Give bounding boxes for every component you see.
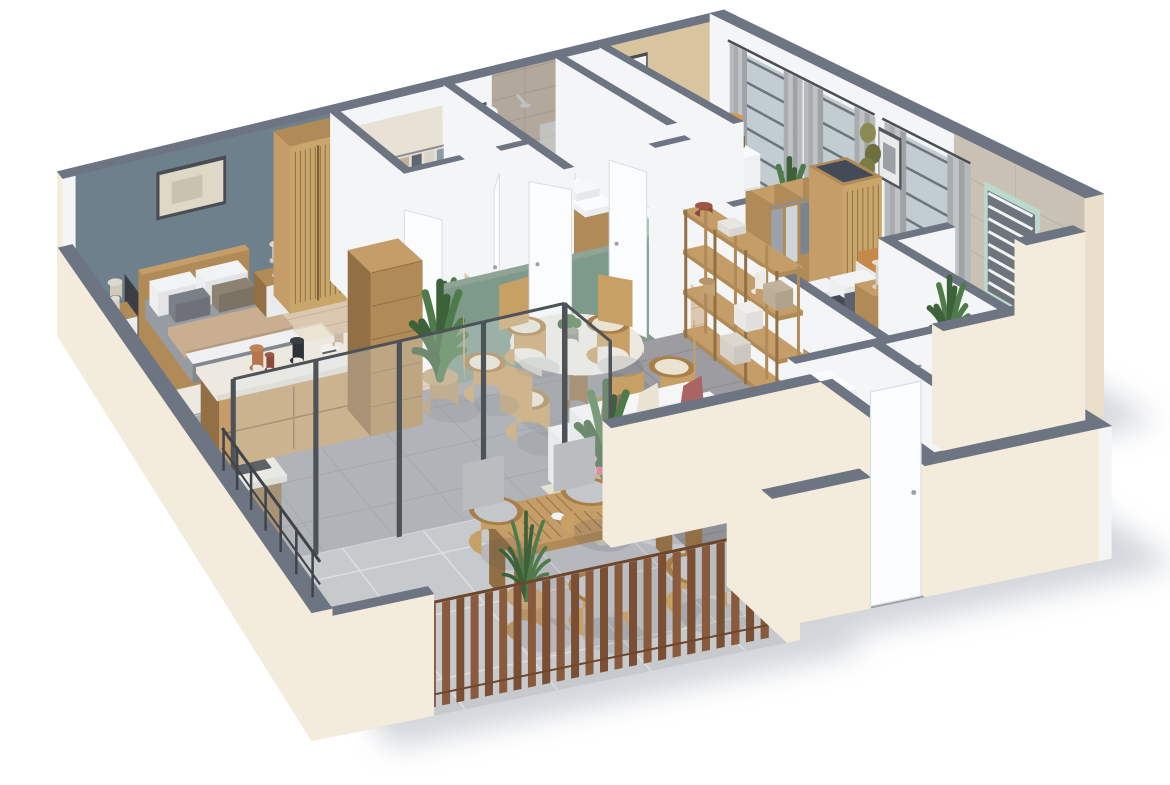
floor-plan-canvas: 3D isometric apartment floor plan render	[0, 0, 1170, 785]
floor-plan-3d-render: 3D isometric apartment floor plan render	[0, 0, 1170, 785]
